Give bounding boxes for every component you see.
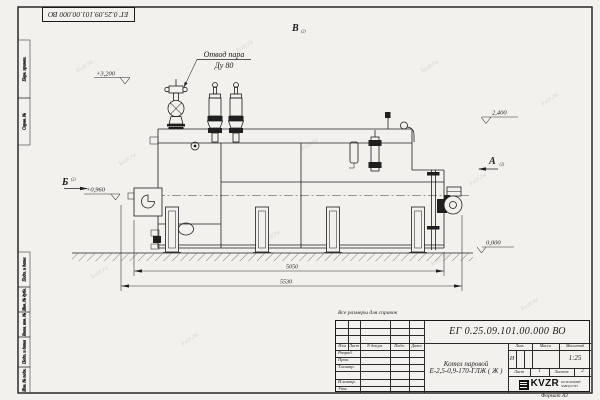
safety-valve bbox=[229, 83, 244, 143]
side-label: Справ. № bbox=[22, 113, 27, 130]
svg-text:(2): (2) bbox=[500, 162, 505, 167]
support-leg bbox=[253, 207, 271, 253]
side-label: Инв. № подл. bbox=[22, 368, 27, 392]
svg-text:5050: 5050 bbox=[286, 265, 298, 271]
drawing-sheet: kvzr.ru kvzr.ru kvzr.ru kvzr.ru kvzr.ru … bbox=[0, 0, 600, 400]
product-name: Котел паровой Е-2,5-0,9-170-ГЛЖ ( Ж ) bbox=[424, 343, 508, 393]
elevation-mark: +0,960 bbox=[84, 187, 120, 201]
row-tkontr: Т.контр. bbox=[336, 364, 360, 371]
svg-text:В: В bbox=[291, 23, 299, 34]
side-label: Подп. и дата bbox=[22, 258, 27, 283]
col-podp: Подп. bbox=[390, 343, 409, 350]
support-legs bbox=[163, 207, 427, 253]
standpipe-fitting bbox=[385, 112, 391, 129]
ground-line bbox=[72, 253, 473, 261]
row-nkontr: Н.контр. bbox=[336, 379, 360, 386]
water-level-gauge bbox=[369, 130, 382, 171]
format-note: Формат А3 bbox=[541, 393, 568, 399]
svg-text:(2): (2) bbox=[301, 29, 306, 34]
elevation-mark: +3,200 bbox=[94, 71, 130, 85]
company-cell: KVZR КОТЕЛЬНЫЙ ЗАВОД РЭП bbox=[508, 376, 591, 393]
side-label: Перв. примен. bbox=[22, 57, 27, 83]
view-label-b: Б (2) bbox=[61, 177, 88, 191]
elevation-mark: 2,400 bbox=[481, 110, 518, 124]
kvzr-logo-icon bbox=[519, 380, 529, 390]
lit-value: И bbox=[508, 350, 516, 368]
sheets-value: 2 bbox=[574, 368, 591, 376]
row-razrab: Разраб. bbox=[336, 350, 360, 357]
manhole bbox=[179, 223, 194, 235]
flue-gas-box bbox=[128, 188, 162, 216]
callout-text: Отвод пара bbox=[204, 50, 245, 59]
side-label: Взам. инв. № bbox=[22, 313, 27, 336]
designation: ЕГ 0.25.09.101.00.000 ВО bbox=[424, 321, 591, 343]
svg-text:+0,960: +0,960 bbox=[86, 187, 106, 194]
reference-note: Все размеры для справок bbox=[338, 310, 397, 316]
svg-text:2,400: 2,400 bbox=[492, 110, 507, 117]
dimension-boiler-length: 5050 bbox=[134, 265, 444, 273]
col-list: Лист bbox=[348, 343, 360, 350]
view-labels: А (2) Б (2) В (2) bbox=[61, 23, 505, 190]
safety-valve bbox=[208, 83, 223, 143]
company-logo-text: KVZR bbox=[531, 379, 559, 390]
svg-text:5530: 5530 bbox=[280, 280, 292, 286]
support-leg bbox=[324, 207, 342, 253]
support-leg bbox=[163, 207, 181, 253]
top-designation-stamp: ЕГ 0.25.09.101.00.000 ВО bbox=[42, 7, 135, 22]
svg-text:Б: Б bbox=[61, 177, 69, 188]
lit-label: Лит. bbox=[508, 343, 532, 350]
scale-label: Масштаб bbox=[559, 343, 591, 350]
sheets-label: Листов bbox=[549, 368, 574, 376]
burner bbox=[437, 187, 462, 214]
sheet-label: Лист bbox=[508, 368, 530, 376]
view-label-a: А (2) bbox=[478, 156, 505, 171]
support-leg bbox=[409, 207, 427, 253]
steam-outlet-callout: Отвод пара Ду 80 bbox=[184, 50, 251, 87]
svg-text:(2): (2) bbox=[71, 177, 76, 182]
designation-flipped: ЕГ 0.25.09.101.00.000 ВО bbox=[48, 10, 128, 19]
boiler-shell bbox=[158, 129, 444, 248]
product-name-line2: Е-2,5-0,9-170-ГЛЖ ( Ж ) bbox=[430, 368, 503, 375]
callout-text: Ду 80 bbox=[214, 61, 234, 70]
mass-label: Масса bbox=[532, 343, 559, 350]
boiler-side-view bbox=[72, 79, 473, 261]
svg-text:+3,200: +3,200 bbox=[96, 71, 116, 78]
frame-side-columns: Перв. примен. Справ. № Подп. и дата Инв.… bbox=[18, 40, 30, 393]
sheet-value: 1 bbox=[530, 368, 549, 376]
company-subtitle: КОТЕЛЬНЫЙ ЗАВОД РЭП bbox=[561, 381, 580, 388]
side-label: Подп. и дата bbox=[22, 340, 27, 365]
row-prov: Пров. bbox=[336, 357, 360, 364]
company-line2: ЗАВОД РЭП bbox=[561, 384, 578, 388]
col-data: Дата bbox=[409, 343, 424, 350]
dimension-overall-length: 5530 bbox=[121, 280, 462, 288]
col-izm: Изм bbox=[336, 343, 348, 350]
water-level-gauge bbox=[349, 142, 358, 168]
svg-text:0,000: 0,000 bbox=[486, 240, 501, 247]
elevation-mark: 0,000 bbox=[477, 240, 514, 254]
title-block: Изм Лист N докум. Подп. Дата Разраб. Про… bbox=[335, 320, 590, 392]
steam-outlet-valve bbox=[165, 79, 187, 129]
scale-value: 1:25 bbox=[559, 350, 591, 368]
svg-text:А: А bbox=[488, 156, 496, 167]
row-utv: Утв. bbox=[336, 386, 360, 393]
view-label-v: В (2) bbox=[291, 23, 306, 34]
col-doc: N докум. bbox=[360, 343, 390, 350]
side-label: Инв. № дубл. bbox=[22, 288, 27, 312]
